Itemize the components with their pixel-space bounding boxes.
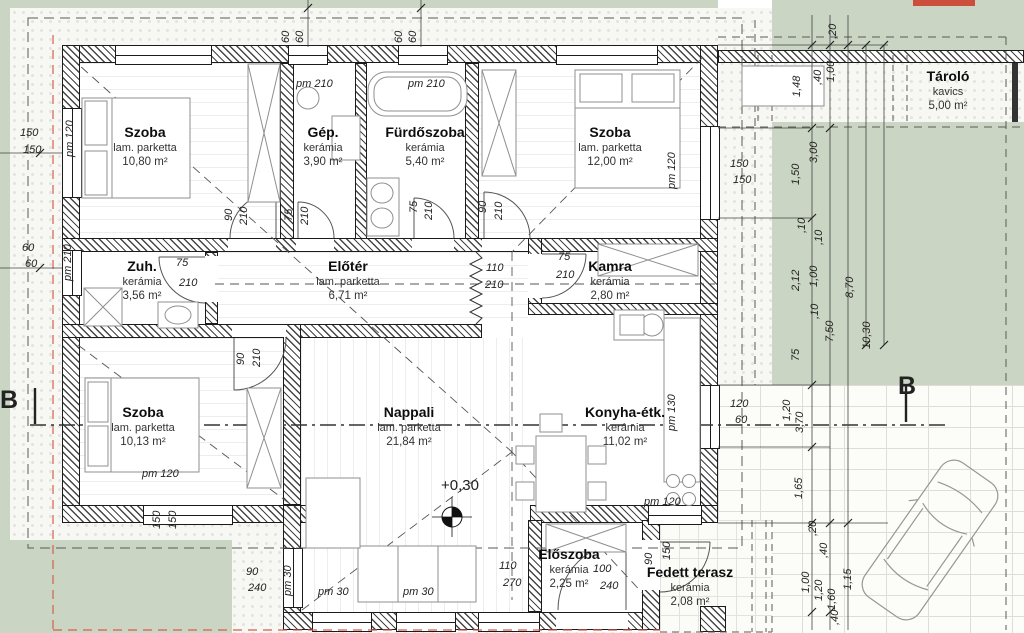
room-floor: kerámia bbox=[620, 582, 760, 596]
room-area: 2,80 m² bbox=[550, 289, 670, 303]
wall-corridor-top bbox=[62, 238, 718, 252]
room-label-nappali: Nappali lam. parketta 21,84 m² bbox=[349, 404, 469, 450]
parapet-szoba2-right: pm 120 bbox=[666, 152, 678, 189]
dim-chain-right: 7,50 bbox=[824, 321, 836, 342]
room-area: 5,40 m² bbox=[365, 155, 485, 169]
wall-kamra-bottom bbox=[528, 303, 718, 315]
room-label-gep: Gép. kerámia 3,90 m² bbox=[283, 124, 363, 170]
wall-szoba3-nappali bbox=[283, 324, 301, 505]
level-mark: +0,30 bbox=[441, 477, 479, 494]
window-nappali-bottom1 bbox=[312, 612, 372, 632]
dim-chain-right: 1,60 bbox=[826, 589, 838, 610]
dim-door-szoba3: 90 bbox=[235, 353, 247, 365]
room-floor: kerámia bbox=[283, 142, 363, 156]
dim-chain-right: ,10 bbox=[809, 304, 821, 319]
dim-door-terasz-ajto: 240 bbox=[248, 582, 266, 594]
room-name: Szoba bbox=[83, 404, 203, 422]
dim-door-eloszoba: 240 bbox=[600, 580, 618, 592]
room-floor: kerámia bbox=[365, 142, 485, 156]
room-floor: lam. parketta bbox=[349, 422, 469, 436]
dim-door-zuh: 210 bbox=[179, 277, 197, 289]
dim-door-gep: 75 bbox=[283, 209, 295, 221]
dim-chain-right: 10,30 bbox=[861, 321, 873, 349]
dim-window-konyha-right: 60 bbox=[735, 414, 747, 426]
room-name: Fürdőszoba bbox=[365, 124, 485, 142]
room-name: Gép. bbox=[283, 124, 363, 142]
room-area: 6,71 m² bbox=[288, 289, 408, 303]
dim-chain-right: 75 bbox=[790, 349, 802, 361]
door-gap-eloszoba bbox=[556, 613, 628, 629]
dim-chain-right: 1,20 bbox=[813, 580, 825, 601]
dim-door-szoba3: 210 bbox=[251, 349, 263, 367]
floor-plan-page: { "rooms": { "szoba1": {"name":"Szoba", … bbox=[0, 0, 1024, 633]
room-area: 12,00 m² bbox=[550, 155, 670, 169]
room-floor: kavics bbox=[888, 86, 1008, 100]
parapet-pm30-a: pm 30 bbox=[318, 586, 349, 598]
dim-door-eloszoba: 100 bbox=[593, 563, 611, 575]
dim-window-szoba2-right: 150 bbox=[730, 158, 748, 170]
dim-door-eloter-konyha: 210 bbox=[485, 279, 503, 291]
grass-area-bottom-left bbox=[0, 540, 232, 633]
dim-window-vent2: 60 bbox=[393, 31, 405, 43]
door-gap-furdo bbox=[412, 239, 454, 251]
dim-window-szoba1-left: 150 bbox=[20, 127, 38, 139]
dim-door-zuh: 75 bbox=[176, 257, 188, 269]
dim-chain-right: 1,50 bbox=[790, 164, 802, 185]
parapet-pm30-rot: pm 30 bbox=[282, 565, 294, 596]
door-gap-zuh bbox=[205, 256, 218, 302]
dim-chain-right: 2,12 bbox=[790, 270, 802, 291]
terrace-pillar bbox=[700, 606, 726, 632]
dim-chain-right: 8,70 bbox=[844, 277, 856, 298]
door-gap-szoba1 bbox=[228, 239, 276, 251]
dim-chain-top: 1,00 bbox=[825, 61, 837, 82]
parapet-gep-top: pm 210 bbox=[296, 78, 333, 90]
window-vent1 bbox=[288, 45, 328, 65]
dim-window-vent1: 60 bbox=[280, 31, 292, 43]
door-gap-gep bbox=[296, 239, 334, 251]
dim-window-szoba3-bottom: 150 bbox=[167, 511, 179, 529]
dim-window-nappali-terasz: 110 bbox=[499, 560, 517, 572]
parapet-szoba1-left: pm 120 bbox=[64, 120, 76, 157]
parapet-pm30-b: pm 30 bbox=[403, 586, 434, 598]
room-area: 10,13 m² bbox=[83, 435, 203, 449]
parapet-konyha-right: pm 130 bbox=[666, 394, 678, 431]
window-nappali-bottom2 bbox=[396, 612, 456, 632]
dim-chain-right: 1,00 bbox=[808, 266, 820, 287]
dim-chain-right: 1,15 bbox=[842, 569, 854, 590]
dim-window-konyha-right: 120 bbox=[730, 398, 748, 410]
dim-window-vent2: 60 bbox=[407, 31, 419, 43]
dim-door-kamra: 75 bbox=[558, 251, 570, 263]
window-konyha-right bbox=[700, 385, 720, 449]
dim-chain-right: 1,00 bbox=[800, 572, 812, 593]
room-label-szoba3: Szoba lam. parketta 10,13 m² bbox=[83, 404, 203, 450]
section-mark-left: B bbox=[0, 386, 18, 415]
room-floor: lam. parketta bbox=[550, 142, 670, 156]
dim-window-zuh-left: 60 bbox=[22, 242, 34, 254]
dim-chain-top: ,40 bbox=[812, 70, 824, 85]
tarolo-end-post bbox=[1012, 63, 1018, 122]
dim-window-szoba3-bottom: 150 bbox=[151, 511, 163, 529]
window-vent2 bbox=[398, 45, 448, 65]
parapet-szoba3-bottom: pm 120 bbox=[142, 468, 179, 480]
dim-door-terasz-oldal: 150 bbox=[661, 542, 673, 560]
dim-chain-right: 3,70 bbox=[794, 412, 806, 433]
dim-window-zuh-left: 60 bbox=[25, 258, 37, 270]
window-konyha-bottom bbox=[648, 505, 702, 525]
dim-door-eloter-konyha: 110 bbox=[486, 262, 504, 274]
room-floor: lam. parketta bbox=[83, 422, 203, 436]
section-mark-right: B bbox=[898, 372, 916, 401]
window-szoba2-right bbox=[700, 126, 720, 220]
parapet-zuh-left: pm 210 bbox=[62, 244, 74, 281]
door-gap-szoba2 bbox=[482, 239, 528, 251]
dim-chain-right: ,20 bbox=[807, 521, 819, 536]
dim-chain-right: ,10 bbox=[813, 230, 825, 245]
red-marker bbox=[913, 0, 975, 6]
dim-door-furdo: 75 bbox=[408, 201, 420, 213]
tarolo-wall bbox=[718, 50, 1024, 63]
room-area: 3,90 m² bbox=[283, 155, 363, 169]
room-name: Nappali bbox=[349, 404, 469, 422]
dim-door-kamra: 210 bbox=[556, 269, 574, 281]
dim-window-nappali-terasz: 270 bbox=[503, 577, 521, 589]
dim-door-szoba2: 90 bbox=[477, 201, 489, 213]
room-area: 5,00 m² bbox=[888, 99, 1008, 113]
room-name: Előtér bbox=[288, 258, 408, 276]
dim-chain-top: 1,48 bbox=[791, 76, 803, 97]
dim-door-szoba2: 210 bbox=[493, 202, 505, 220]
dim-chain-right: ,40 bbox=[829, 610, 841, 625]
dim-door-terasz-oldal: 90 bbox=[643, 553, 655, 565]
dim-door-terasz-ajto: 90 bbox=[246, 566, 258, 578]
grass-strip-top bbox=[0, 0, 718, 8]
room-label-szoba2: Szoba lam. parketta 12,00 m² bbox=[550, 124, 670, 170]
dim-chain-right: ,10 bbox=[796, 218, 808, 233]
room-label-szoba1: Szoba lam. parketta 10,80 m² bbox=[85, 124, 205, 170]
window-szoba2-top bbox=[556, 45, 658, 65]
room-label-terasz: Fedett terasz kerámia 2,08 m² bbox=[620, 564, 760, 610]
room-floor: lam. parketta bbox=[85, 142, 205, 156]
room-area: 10,80 m² bbox=[85, 155, 205, 169]
room-floor: lam. parketta bbox=[288, 276, 408, 290]
dim-window-vent1: 60 bbox=[294, 31, 306, 43]
room-label-tarolo: Tároló kavics 5,00 m² bbox=[888, 68, 1008, 114]
window-nappali-terasz bbox=[478, 612, 540, 632]
grass-strip-left bbox=[0, 8, 10, 553]
room-name: Szoba bbox=[550, 124, 670, 142]
room-name: Szoba bbox=[85, 124, 205, 142]
room-area: 2,08 m² bbox=[620, 595, 760, 609]
dim-door-gep: 210 bbox=[299, 207, 311, 225]
dim-chain-right: 3,00 bbox=[808, 142, 820, 163]
door-gap-szoba3 bbox=[232, 325, 286, 337]
room-area: 3,56 m² bbox=[82, 289, 202, 303]
parapet-furdo-top: pm 210 bbox=[408, 78, 445, 90]
dim-chain-right: ,40 bbox=[818, 543, 830, 558]
parapet-konyha-bottom: pm 120 bbox=[644, 496, 681, 508]
dim-chain-top: ,20 bbox=[827, 24, 839, 39]
room-area: 11,02 m² bbox=[565, 435, 685, 449]
dim-door-furdo: 210 bbox=[423, 202, 435, 220]
dim-chain-right: 1,20 bbox=[781, 400, 793, 421]
wall-right bbox=[700, 45, 718, 523]
dim-door-szoba1: 90 bbox=[223, 209, 235, 221]
room-label-eloter: Előtér lam. parketta 6,71 m² bbox=[288, 258, 408, 304]
room-area: 21,84 m² bbox=[349, 435, 469, 449]
room-name: Fedett terasz bbox=[620, 564, 760, 582]
room-name: Tároló bbox=[888, 68, 1008, 86]
dim-chain-right: 1,65 bbox=[793, 478, 805, 499]
room-label-furdoszoba: Fürdőszoba kerámia 5,40 m² bbox=[365, 124, 485, 170]
dim-window-szoba1-left: 150 bbox=[23, 144, 41, 156]
room-name: Előszoba bbox=[509, 546, 629, 564]
window-szoba1-top bbox=[115, 45, 212, 65]
dim-window-szoba2-right: 150 bbox=[733, 174, 751, 186]
room-floor-nappali bbox=[301, 338, 528, 612]
door-gap-kamra bbox=[528, 254, 542, 298]
dim-door-szoba1: 210 bbox=[238, 207, 250, 225]
